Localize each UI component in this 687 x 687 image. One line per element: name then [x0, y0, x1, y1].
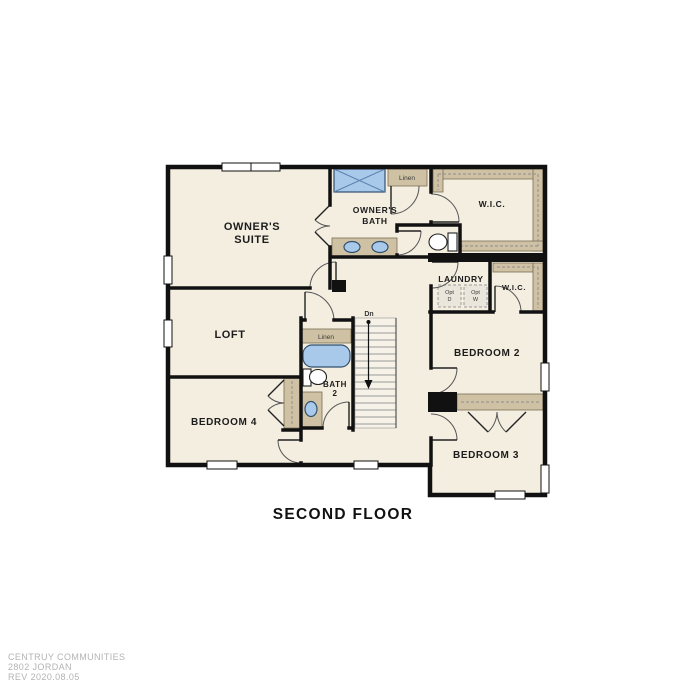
window-owners-suite-top-right	[251, 163, 280, 171]
opt-washer-label-line1: Opt	[471, 290, 480, 296]
bedroom2-label: BEDROOM 2	[454, 348, 520, 359]
opt-dryer-label-line2: D	[448, 297, 452, 303]
wall-block-bedroom-divider	[428, 392, 457, 412]
owners-bath-label-line2: BATH	[362, 216, 387, 226]
owners-suite-label-line2: SUITE	[234, 234, 269, 246]
window-loft-left	[164, 320, 172, 347]
sink-right-owners-bath	[372, 242, 388, 253]
opt-dryer-label-line1: Opt	[445, 290, 454, 296]
footer-line1: CENTRUY COMMUNITIES	[8, 652, 125, 662]
window-bedroom4-bottom	[207, 461, 237, 469]
window-owners-suite-left	[164, 256, 172, 284]
wic1-label: W.I.C.	[479, 199, 506, 209]
laundry-label: LAUNDRY	[438, 274, 483, 284]
wall-band-below-wic1	[428, 253, 545, 262]
stairs-dn-label: Dn	[364, 311, 373, 318]
footer-line2: 2802 JORDAN	[8, 662, 72, 672]
wall-post-owners-suite	[332, 280, 346, 292]
bath2-label-line2: 2	[332, 389, 337, 398]
sink-bath2	[305, 402, 317, 417]
loft-label: LOFT	[214, 329, 245, 341]
opt-dryer-box	[438, 285, 461, 307]
linen-bath2-label: Linen	[318, 334, 334, 341]
owners-bath-label-line1: OWNER'S	[353, 205, 397, 215]
shower-owners-bath	[334, 169, 385, 192]
staircase	[355, 318, 396, 428]
bedroom3-label: BEDROOM 3	[453, 450, 519, 461]
footer-block: CENTRUY COMMUNITIES 2802 JORDAN REV 2020…	[8, 652, 125, 682]
opt-washer-label-line2: W	[473, 297, 479, 303]
bedroom4-label: BEDROOM 4	[191, 417, 257, 428]
wic2-label: W.I.C.	[502, 283, 526, 292]
plan-title: SECOND FLOOR	[273, 506, 413, 523]
sink-left-owners-bath	[344, 242, 360, 253]
footer-line3: REV 2020.08.05	[8, 672, 80, 682]
linen-owners-bath-label: Linen	[399, 175, 415, 182]
bedroom3-closet-shelf	[457, 394, 543, 410]
window-hall-bottom	[354, 461, 378, 469]
window-owners-suite-top-left	[222, 163, 251, 171]
owners-suite-label-line1: OWNER'S	[224, 221, 280, 233]
toilet-owners-wc	[429, 233, 457, 251]
floorplan-page: OWNER'S SUITE OWNER'S BATH W.I.C. LAUNDR…	[0, 0, 687, 687]
window-bedroom2-right	[541, 363, 549, 391]
bathtub-bath2	[303, 345, 350, 367]
bath2-label-line1: BATH	[323, 380, 347, 389]
window-bedroom3-bottom	[495, 491, 525, 499]
floorplan-drawing: OWNER'S SUITE OWNER'S BATH W.I.C. LAUNDR…	[0, 0, 687, 687]
window-bedroom3-right	[541, 465, 549, 493]
opt-washer-box	[464, 285, 487, 307]
